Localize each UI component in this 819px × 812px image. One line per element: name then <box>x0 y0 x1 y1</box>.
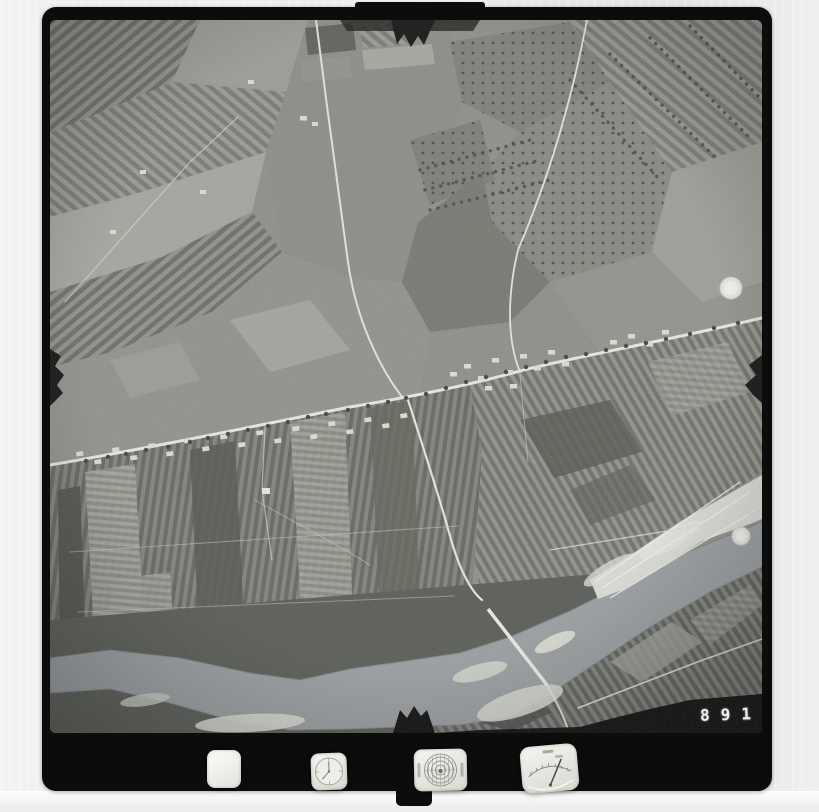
film-grain-overlay <box>50 20 762 733</box>
aerial-photograph <box>50 20 762 733</box>
film-frame: 891 <box>42 7 772 791</box>
altimeter-gauge-icon <box>519 743 580 795</box>
level-bubble-dial <box>414 749 468 792</box>
film-edge-tab-top <box>355 2 485 16</box>
altimeter-dial <box>519 743 580 795</box>
clock-face-icon <box>310 752 347 790</box>
frame-number: 891 <box>700 702 811 725</box>
blank-window <box>207 750 241 788</box>
aerial-photo-rendering <box>50 20 762 733</box>
scanned-aerial-film-frame: { "film_frame": { "frame_number": "891",… <box>0 0 819 811</box>
clock-dial <box>310 752 347 790</box>
level-bubble-icon <box>414 749 468 792</box>
